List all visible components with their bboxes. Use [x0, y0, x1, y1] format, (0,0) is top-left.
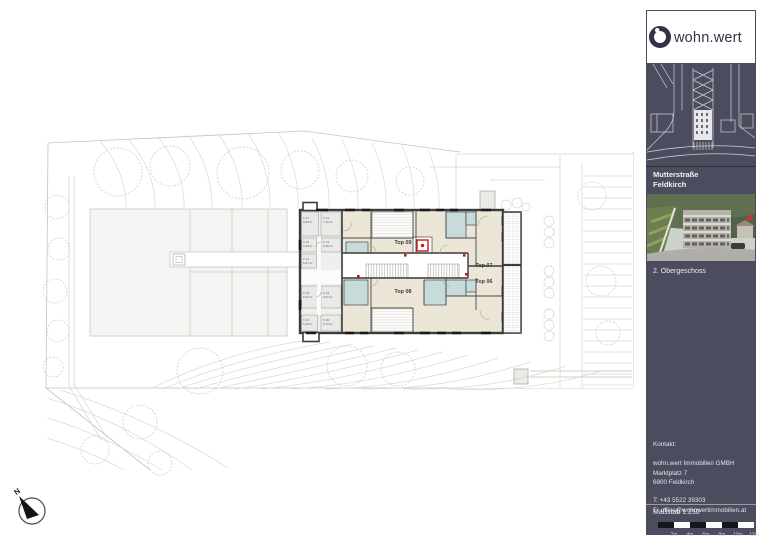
neighbor-building	[90, 209, 302, 336]
scale-block: Maßstab 1:250 2m 4m 6m 8m 10m 12m	[646, 504, 756, 545]
scale-tick: 4m	[687, 532, 694, 538]
scale-tick: 8m	[719, 532, 726, 538]
project-title: Mutterstraße Feldkirch	[646, 166, 756, 197]
staircase-east	[428, 264, 459, 278]
logo: wohn.wert	[647, 11, 755, 63]
building-floorplan: K 17 5,50m² K 19 7,62m² K 15 5,46m² K 13…	[300, 203, 521, 342]
project-title-line1: Mutterstraße	[653, 170, 756, 180]
elevator-marker	[417, 240, 428, 251]
building-photo	[647, 194, 755, 261]
balcony-strip	[503, 212, 521, 333]
north-label: N	[12, 486, 22, 496]
wohnwert-logo-icon	[652, 28, 669, 46]
garbage-enclosure	[480, 191, 495, 210]
scale-tick: 10m	[733, 532, 743, 538]
apartment-label-top09: Top 09	[395, 240, 412, 246]
room-area: 6,46m²	[323, 244, 332, 248]
scale-bar: 2m 4m 6m 8m 10m 12m	[653, 519, 761, 541]
contact-heading: Kontakt:	[653, 440, 751, 450]
scale-tick: 12m	[749, 532, 759, 538]
logo-text: wohn.wert	[673, 30, 742, 46]
wohnwert-logo: wohn.wert	[647, 22, 753, 52]
scale-label: Maßstab 1:250	[653, 509, 756, 516]
room-area: 5,50m²	[303, 220, 312, 224]
room-area: 7,62m²	[323, 220, 332, 224]
room-area: 6,67m²	[303, 295, 312, 299]
plan-sheet: K 17 5,50m² K 19 7,62m² K 15 5,46m² K 13…	[0, 0, 770, 545]
compass-icon: N	[12, 486, 45, 524]
floor-label: 2. Obergeschoss	[653, 268, 706, 275]
room-area: 6,07m²	[303, 261, 312, 265]
room-area: 6,61m²	[323, 295, 332, 299]
chimney	[303, 203, 317, 211]
project-title-line2: Feldkirch	[653, 180, 756, 190]
apartment-label-top07: Top 07	[476, 263, 493, 269]
connecting-corridor	[170, 252, 302, 267]
apartment-label-top06: Top 06	[476, 279, 493, 285]
contact-city: 6800 Feldkirch	[653, 478, 751, 488]
apartment-label-top08: Top 08	[395, 289, 412, 295]
room-area: 6,30m²	[303, 322, 312, 326]
staircase-west	[366, 264, 408, 278]
scale-tick: 6m	[703, 532, 710, 538]
scale-tick: 2m	[671, 532, 678, 538]
contact-company: wohn.wert Immobilien GMBH	[653, 459, 751, 469]
contact-street: Marktplatz 7	[653, 469, 751, 479]
site-map-image	[647, 64, 755, 165]
info-sidebar: wohn.wert Mutterstraße Feldkirch	[646, 10, 756, 535]
room-area: 6,71m²	[323, 322, 332, 326]
room-area: 5,46m²	[303, 244, 312, 248]
